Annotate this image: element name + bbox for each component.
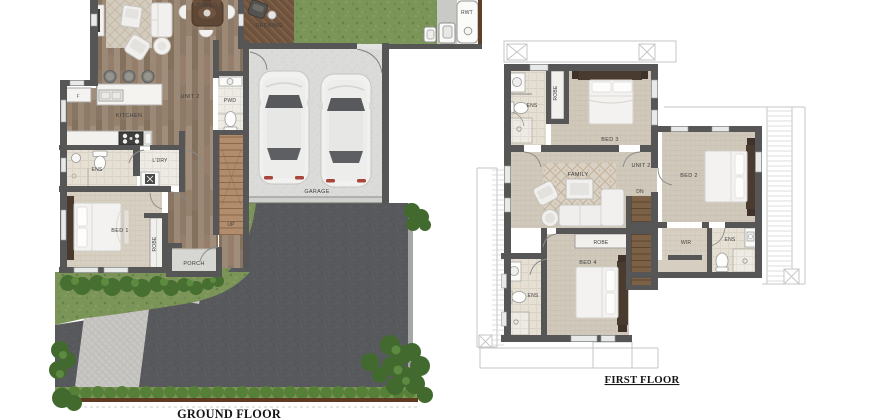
- svg-text:GARAGE: GARAGE: [304, 189, 329, 195]
- svg-text:DINING: DINING: [196, 3, 217, 9]
- svg-text:ENS: ENS: [527, 103, 538, 109]
- svg-text:KITCHEN: KITCHEN: [116, 113, 142, 119]
- svg-text:GROUND FLOOR: GROUND FLOOR: [177, 407, 281, 420]
- svg-text:UNIT 2: UNIT 2: [631, 163, 650, 169]
- svg-text:BED 2: BED 2: [680, 173, 697, 179]
- svg-text:ROBE: ROBE: [553, 85, 559, 100]
- svg-text:ROBE: ROBE: [152, 236, 158, 251]
- svg-text:RWT: RWT: [461, 10, 473, 16]
- svg-text:ENS: ENS: [725, 237, 736, 243]
- svg-text:F: F: [77, 94, 80, 99]
- svg-text:WIR: WIR: [681, 240, 692, 246]
- svg-text:BED 4: BED 4: [579, 260, 596, 266]
- svg-text:FAMILY: FAMILY: [568, 172, 589, 178]
- svg-text:ROBE: ROBE: [594, 240, 609, 246]
- svg-text:ENS: ENS: [92, 167, 103, 173]
- svg-text:FIRST FLOOR: FIRST FLOOR: [605, 374, 680, 386]
- svg-text:UP: UP: [227, 222, 235, 228]
- svg-text:BED 3: BED 3: [601, 137, 618, 143]
- svg-text:ENS: ENS: [528, 293, 539, 299]
- svg-text:DECKING: DECKING: [255, 23, 282, 29]
- svg-text:PWD: PWD: [224, 98, 236, 104]
- svg-text:L'DRY: L'DRY: [152, 158, 168, 164]
- svg-text:PORCH: PORCH: [183, 261, 204, 267]
- svg-text:DN: DN: [636, 189, 644, 195]
- svg-text:UNIT 2: UNIT 2: [180, 94, 199, 100]
- svg-text:BED 1: BED 1: [111, 228, 128, 234]
